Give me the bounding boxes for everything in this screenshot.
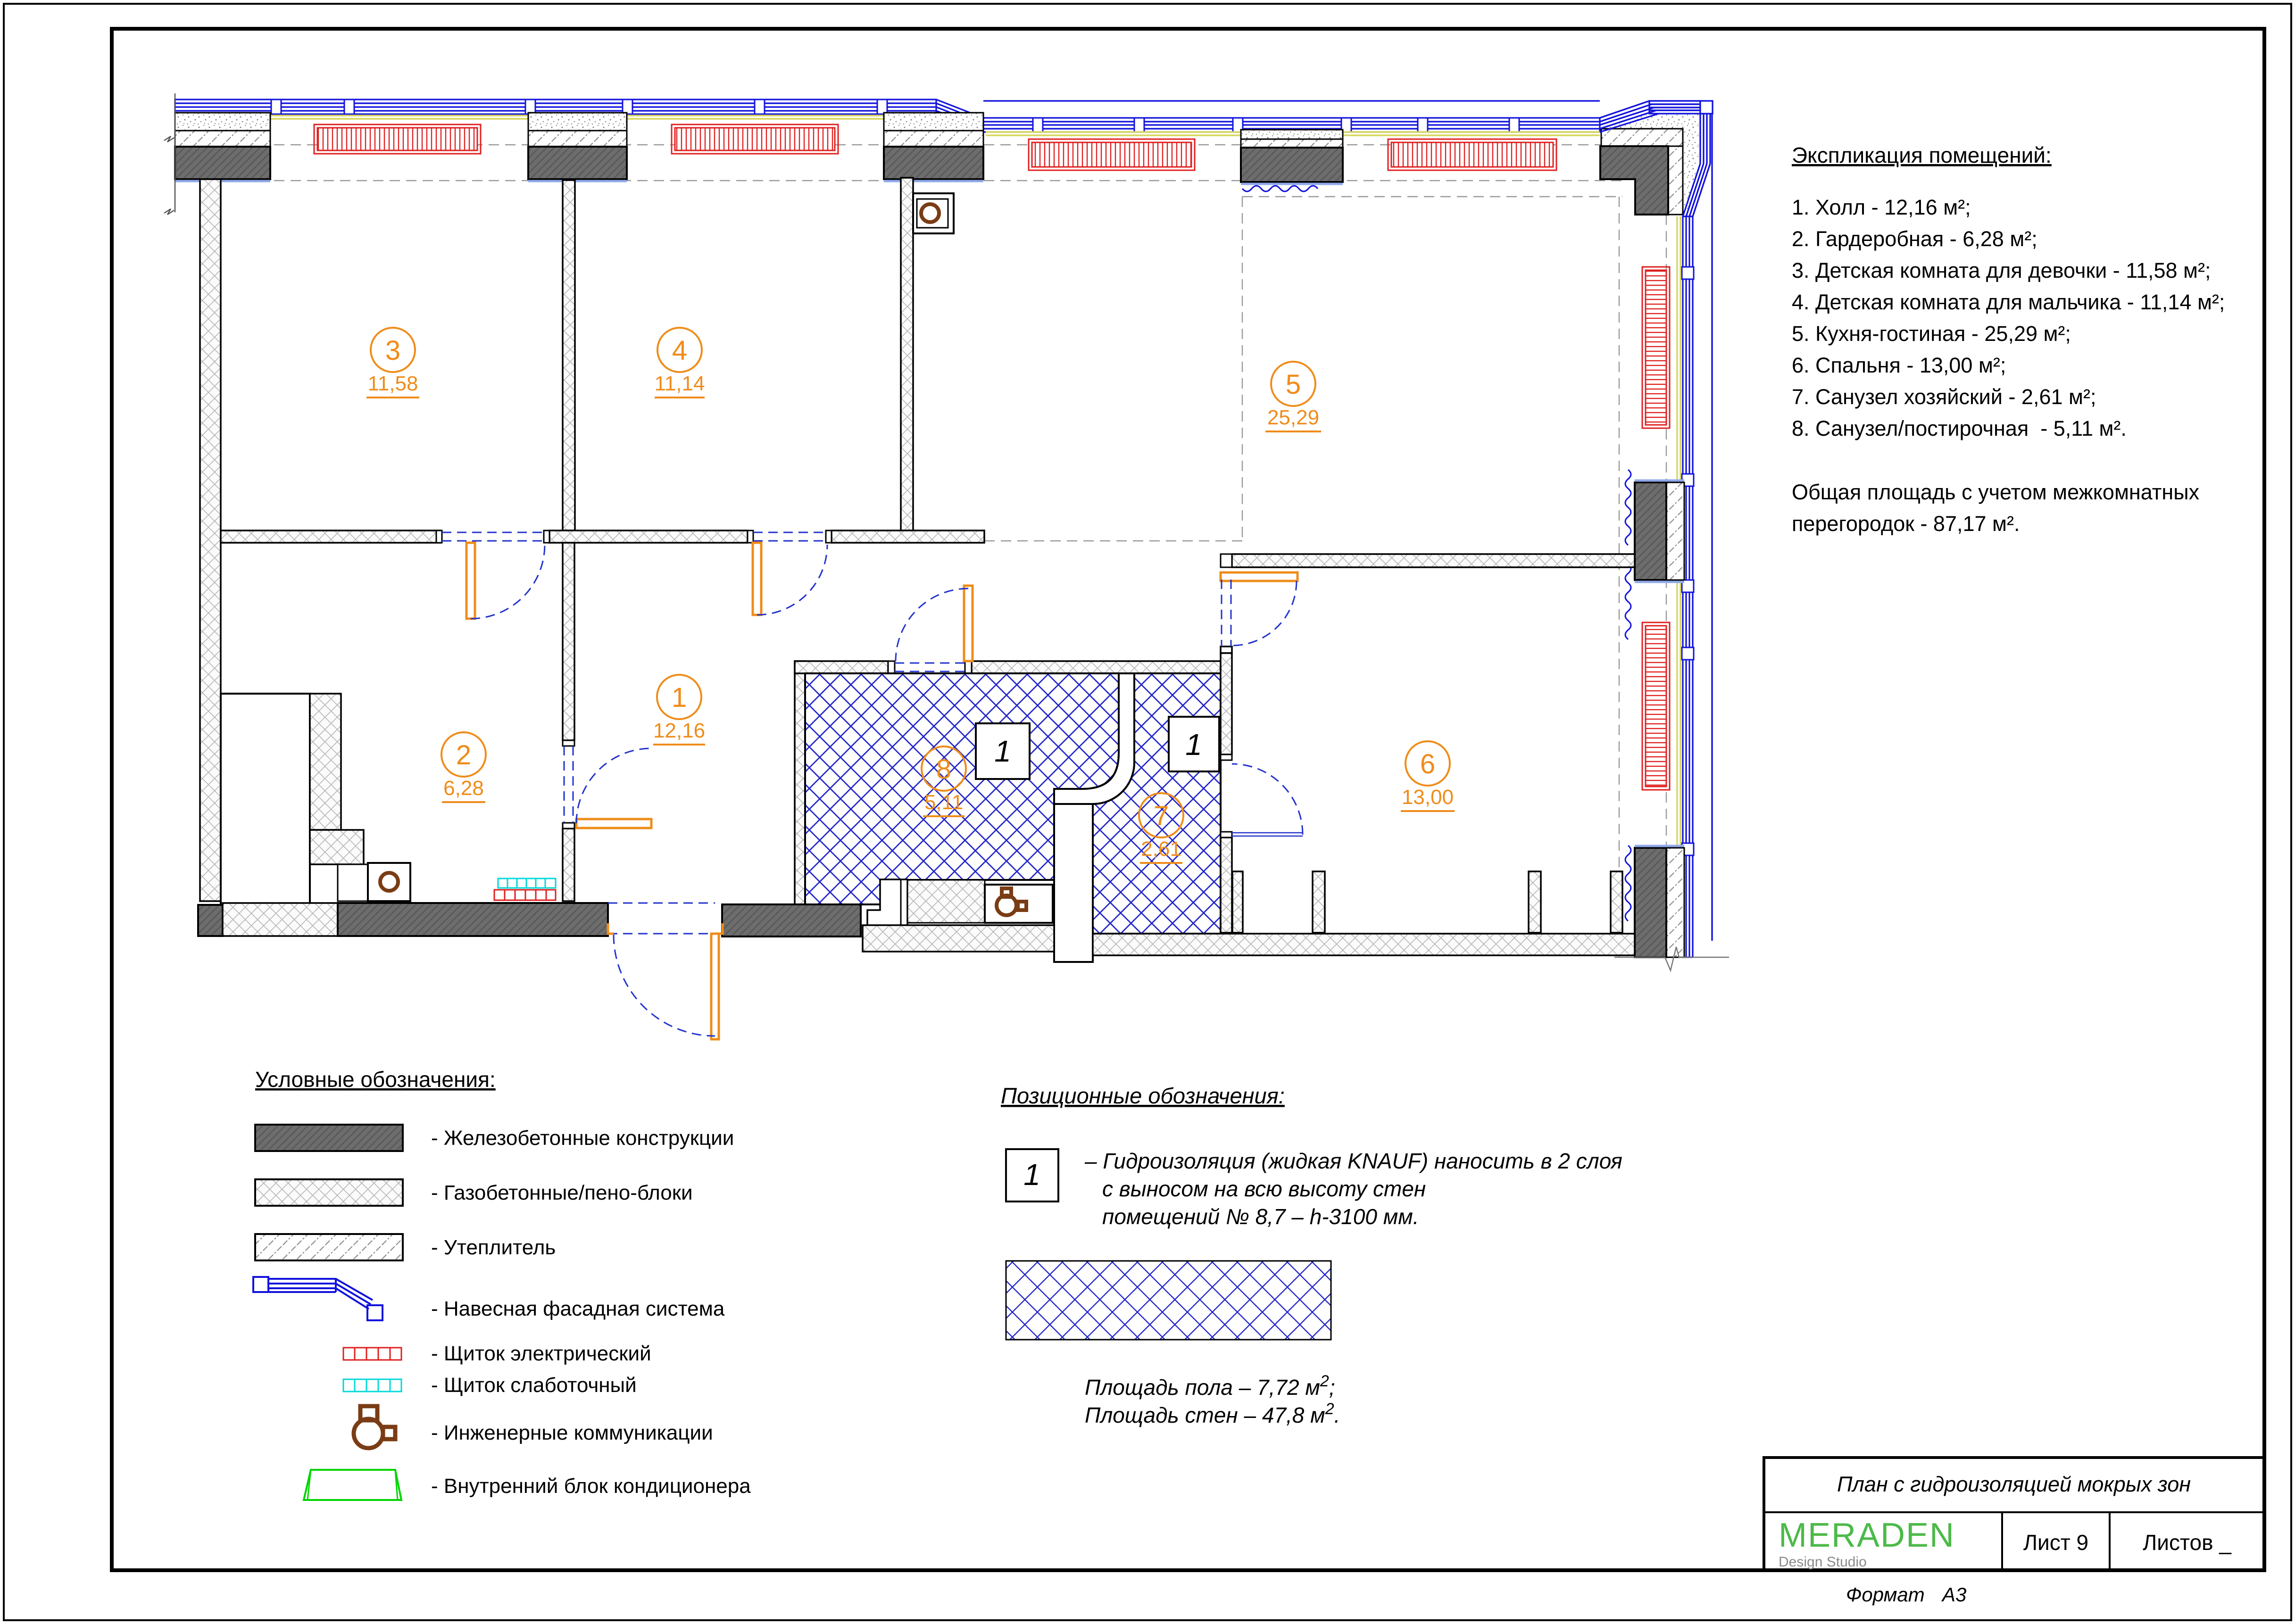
- svg-text:- Инженерные коммуникации: - Инженерные коммуникации: [431, 1421, 713, 1444]
- svg-text:3: 3: [385, 335, 400, 366]
- svg-text:- Газобетонные/пено-блоки: - Газобетонные/пено-блоки: [431, 1181, 693, 1204]
- svg-text:– Гидроизоляция (жидкая KNAUF): – Гидроизоляция (жидкая KNAUF) наносить …: [1084, 1149, 1622, 1173]
- svg-text:Общая площадь с учетом межкомн: Общая площадь с учетом межкомнатных: [1792, 480, 2200, 504]
- svg-text:Экспликация помещений:: Экспликация помещений:: [1792, 143, 2052, 167]
- svg-text:8: 8: [936, 754, 951, 785]
- svg-text:6: 6: [1420, 749, 1435, 779]
- svg-text:1: 1: [994, 734, 1011, 768]
- svg-text:Design Studio: Design Studio: [1779, 1554, 1867, 1570]
- svg-text:1: 1: [672, 682, 687, 713]
- svg-text:11,14: 11,14: [655, 372, 705, 395]
- svg-text:- Утеплитель: - Утеплитель: [431, 1236, 556, 1259]
- svg-text:1: 1: [1023, 1158, 1040, 1192]
- svg-text:1: 1: [1185, 728, 1202, 762]
- svg-text:1. Холл - 12,16 м²;: 1. Холл - 12,16 м²;: [1792, 195, 1971, 219]
- svg-text:8. Санузел/постирочная - 5,11: 8. Санузел/постирочная - 5,11 м².: [1792, 416, 2127, 440]
- svg-text:- Щиток слаботочный: - Щиток слаботочный: [431, 1374, 637, 1397]
- svg-text:6,28: 6,28: [443, 777, 484, 800]
- svg-text:Условные обозначения:: Условные обозначения:: [255, 1067, 496, 1092]
- svg-text:План с гидроизоляцией мокрых з: План с гидроизоляцией мокрых зон: [1837, 1472, 2191, 1496]
- svg-text:5,11: 5,11: [924, 791, 963, 814]
- svg-text:Площадь стен – 47,8 м2.: Площадь стен – 47,8 м2.: [1085, 1400, 1340, 1427]
- svg-text:4: 4: [672, 335, 687, 366]
- svg-text:помещений № 8,7 – h-3100 мм.: помещений № 8,7 – h-3100 мм.: [1102, 1204, 1419, 1229]
- svg-text:MERADEN: MERADEN: [1779, 1516, 1955, 1554]
- svg-text:12,16: 12,16: [653, 719, 705, 742]
- svg-text:перегородок - 87,17 м².: перегородок - 87,17 м².: [1792, 512, 2020, 536]
- svg-text:- Внутренний блок кондиционера: - Внутренний блок кондиционера: [431, 1475, 751, 1498]
- svg-text:2,61: 2,61: [1141, 837, 1181, 861]
- svg-text:А3: А3: [1941, 1583, 1966, 1606]
- svg-text:2: 2: [456, 740, 471, 771]
- svg-text:- Железобетонные конструкции: - Железобетонные конструкции: [431, 1127, 734, 1150]
- svg-text:4. Детская комната для мальчик: 4. Детская комната для мальчика - 11,14 …: [1792, 290, 2225, 314]
- svg-text:3. Детская комната для девочки: 3. Детская комната для девочки - 11,58 м…: [1792, 258, 2211, 282]
- svg-text:11,58: 11,58: [368, 372, 418, 395]
- svg-text:Лист 9: Лист 9: [2023, 1530, 2088, 1555]
- svg-text:Формат: Формат: [1846, 1583, 1925, 1606]
- svg-text:2. Гардеробная - 6,28 м²;: 2. Гардеробная - 6,28 м²;: [1792, 227, 2037, 251]
- svg-text:7. Санузел хозяйский - 2,61 м²: 7. Санузел хозяйский - 2,61 м²;: [1792, 385, 2096, 409]
- svg-text:с выносом на всю высоту стен: с выносом на всю высоту стен: [1102, 1177, 1426, 1201]
- svg-text:13,00: 13,00: [1402, 786, 1454, 809]
- svg-text:- Щиток электрический: - Щиток электрический: [431, 1342, 651, 1365]
- svg-text:6. Спальня - 13,00 м²;: 6. Спальня - 13,00 м²;: [1792, 353, 2006, 377]
- svg-text:5. Кухня-гостиная - 25,29 м²;: 5. Кухня-гостиная - 25,29 м²;: [1792, 322, 2071, 346]
- svg-text:Площадь пола – 7,72 м2;: Площадь пола – 7,72 м2;: [1085, 1372, 1335, 1400]
- svg-text:7: 7: [1154, 801, 1169, 831]
- svg-text:25,29: 25,29: [1267, 406, 1319, 429]
- svg-text:- Навесная фасадная система: - Навесная фасадная система: [431, 1297, 725, 1320]
- svg-text:Позиционные обозначения:: Позиционные обозначения:: [1001, 1083, 1285, 1108]
- svg-text:Листов _: Листов _: [2143, 1530, 2232, 1555]
- svg-text:5: 5: [1286, 369, 1301, 400]
